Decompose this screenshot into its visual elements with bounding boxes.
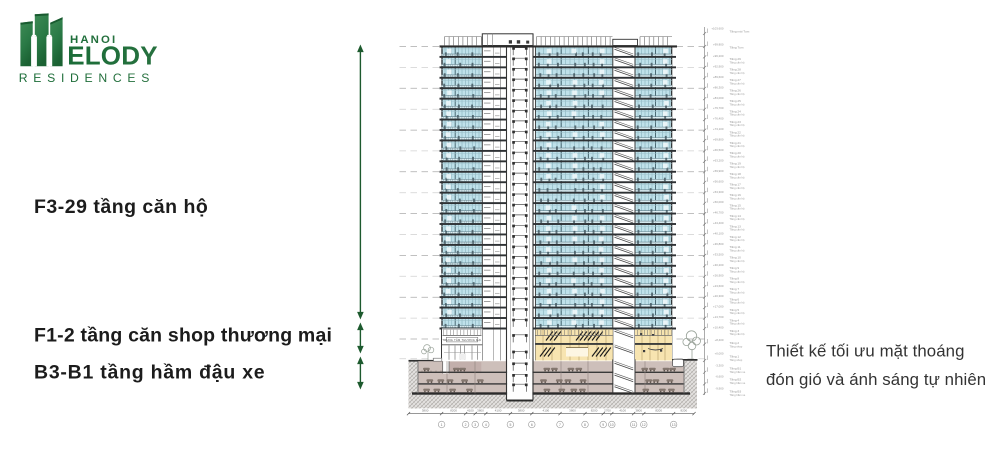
svg-text:Tầng căn hộ: Tầng căn hộ [730,217,745,221]
svg-text:4: 4 [485,423,487,427]
svg-text:+92,900: +92,900 [713,64,724,68]
svg-text:1: 1 [441,423,443,427]
svg-text:8200: 8200 [450,408,457,412]
svg-text:ELODY: ELODY [67,40,158,70]
svg-text:3800: 3800 [635,408,642,412]
svg-text:Tầng căn hộ: Tầng căn hộ [730,92,745,96]
svg-text:Tầng căn hộ: Tầng căn hộ [730,175,745,179]
svg-text:+63,200: +63,200 [713,158,724,162]
svg-text:12: 12 [642,423,646,427]
svg-text:Tầng căn hộ: Tầng căn hộ [730,134,745,138]
svg-text:+26,900: +26,900 [713,273,724,277]
svg-text:7: 7 [559,423,561,427]
svg-text:3800: 3800 [569,408,576,412]
svg-text:+50,000: +50,000 [713,200,724,204]
svg-text:3800: 3800 [518,408,525,412]
svg-text:Tầng căn hộ: Tầng căn hộ [730,81,745,85]
svg-text:+69,800: +69,800 [713,138,724,142]
svg-text:+0,000: +0,000 [715,352,724,356]
svg-text:4100: 4100 [495,408,502,412]
svg-text:-6,600: -6,600 [715,375,724,379]
svg-text:+23,600: +23,600 [713,284,724,288]
svg-text:Tầng căn hộ: Tầng căn hộ [730,332,745,336]
svg-text:RESIDENCES: RESIDENCES [19,71,155,85]
svg-text:+66,500: +66,500 [713,148,724,152]
svg-text:Tầng căn hộ: Tầng căn hộ [730,290,745,294]
svg-text:Tầng căn hộ: Tầng căn hộ [730,113,745,117]
svg-text:5: 5 [509,423,511,427]
svg-text:F1-2 tầng căn shop thương mại: F1-2 tầng căn shop thương mại [34,325,332,347]
svg-text:+59,900: +59,900 [713,169,724,173]
svg-text:+8,400: +8,400 [715,338,724,342]
svg-text:-9,900: -9,900 [715,387,724,391]
svg-text:Tầng căn hộ: Tầng căn hộ [730,71,745,75]
svg-text:6: 6 [531,423,533,427]
svg-text:+56,600: +56,600 [713,179,724,183]
svg-text:+79,700: +79,700 [713,106,724,110]
svg-text:3800: 3800 [422,408,429,412]
svg-text:+30,200: +30,200 [713,263,724,267]
svg-text:Tầng căn hộ: Tầng căn hộ [730,144,745,148]
svg-text:+36,800: +36,800 [713,242,724,246]
svg-text:+43,400: +43,400 [713,221,724,225]
svg-text:+13,700: +13,700 [713,315,724,319]
svg-text:4100: 4100 [619,408,626,412]
svg-text:Tầng căn hộ: Tầng căn hộ [730,123,745,127]
svg-text:+17,000: +17,000 [713,305,724,309]
svg-text:+96,200: +96,200 [713,54,724,58]
svg-text:đón gió và ánh sáng tự nhiên: đón gió và ánh sáng tự nhiên [766,370,986,389]
svg-text:Tầng căn hộ: Tầng căn hộ [730,322,745,326]
svg-text:9: 9 [602,423,604,427]
svg-text:8200: 8200 [680,408,687,412]
svg-text:Tầng căn hộ: Tầng căn hộ [730,259,745,263]
svg-text:Tầng mái Tum: Tầng mái Tum [730,30,750,34]
svg-text:8200: 8200 [655,408,662,412]
svg-text:11: 11 [632,423,636,427]
svg-text:Tầng căn hộ: Tầng căn hộ [730,207,745,211]
svg-text:+33,500: +33,500 [713,252,724,256]
svg-text:+86,300: +86,300 [713,85,724,89]
svg-text:+76,400: +76,400 [713,117,724,121]
svg-text:+83,000: +83,000 [713,96,724,100]
svg-text:+99.800: +99.800 [713,43,724,47]
svg-text:Tầng căn hộ: Tầng căn hộ [730,311,745,315]
svg-text:+73,100: +73,100 [713,127,724,131]
svg-text:10: 10 [610,423,614,427]
svg-text:+10,400: +10,400 [713,326,724,330]
svg-text:Tầng căn hộ: Tầng căn hộ [730,238,745,242]
svg-text:Tầng căn hộ: Tầng căn hộ [730,165,745,169]
svg-text:+103.600: +103.600 [711,27,724,31]
svg-text:Tầng hầm xe: Tầng hầm xe [730,381,746,385]
svg-text:Tầng căn hộ: Tầng căn hộ [730,102,745,106]
svg-text:Tầng hầm xe: Tầng hầm xe [730,370,746,374]
svg-text:Tầng hầm xe: Tầng hầm xe [730,393,746,397]
svg-text:4100: 4100 [467,408,474,412]
svg-text:Thiết kế tối ưu mặt thoáng: Thiết kế tối ưu mặt thoáng [766,342,965,361]
svg-text:4100: 4100 [543,408,550,412]
svg-text:Tầng Tum: Tầng Tum [730,46,744,50]
svg-text:Tầng căn hộ: Tầng căn hộ [730,280,745,284]
svg-text:Tầng shop: Tầng shop [730,358,743,362]
svg-text:Tầng căn hộ: Tầng căn hộ [730,301,745,305]
svg-text:+20,300: +20,300 [713,294,724,298]
svg-text:+40,100: +40,100 [713,232,724,236]
svg-text:13: 13 [672,423,676,427]
svg-text:+46,700: +46,700 [713,211,724,215]
svg-text:Tầng căn hộ: Tầng căn hộ [730,186,745,190]
svg-text:Tầng căn hộ: Tầng căn hộ [730,269,745,273]
svg-text:+53,300: +53,300 [713,190,724,194]
svg-text:Tầng căn hộ: Tầng căn hộ [730,196,745,200]
svg-text:8200: 8200 [591,408,598,412]
svg-text:Tầng căn hộ: Tầng căn hộ [730,228,745,232]
svg-text:-3,300: -3,300 [715,364,724,368]
svg-text:Tầng căn hộ: Tầng căn hộ [730,61,745,65]
svg-text:F3-29 tầng căn hộ: F3-29 tầng căn hộ [34,196,208,218]
svg-text:Tầng căn hộ: Tầng căn hộ [730,155,745,159]
svg-text:3800: 3800 [477,408,484,412]
svg-text:Tầng căn hộ: Tầng căn hộ [730,249,745,253]
svg-text:3: 3 [474,423,476,427]
svg-text:2: 2 [465,423,467,427]
svg-text:2700: 2700 [604,408,611,412]
svg-text:+89,600: +89,600 [713,75,724,79]
svg-text:8: 8 [584,423,586,427]
svg-text:Tầng shop: Tầng shop [730,345,743,349]
svg-text:B3-B1 tầng hầm đậu xe: B3-B1 tầng hầm đậu xe [34,362,265,384]
